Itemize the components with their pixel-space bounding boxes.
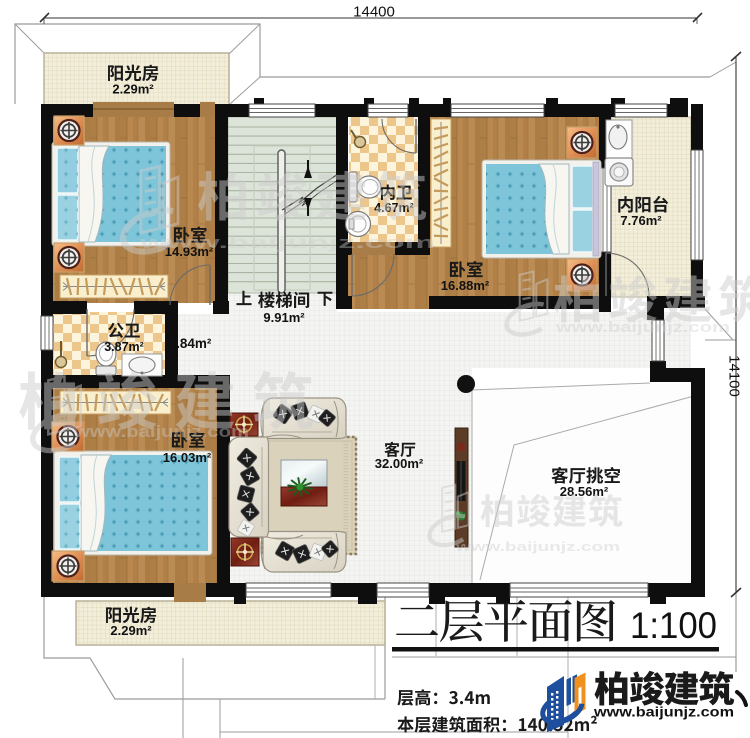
svg-text:2.29m²: 2.29m² <box>110 623 152 638</box>
svg-text:3.87m²: 3.87m² <box>104 340 144 354</box>
svg-text:www.baijunjz.com: www.baijunjz.com <box>455 539 620 554</box>
svg-text:28.56m²: 28.56m² <box>560 484 609 499</box>
svg-text:www.baijunjz.com: www.baijunjz.com <box>73 423 249 441</box>
svg-text:16.03m²: 16.03m² <box>163 450 212 465</box>
svg-text:www.baijunjz.com: www.baijunjz.com <box>593 705 734 720</box>
svg-text:9.91m²: 9.91m² <box>263 310 305 325</box>
svg-text:www.baijunjz.com: www.baijunjz.com <box>555 319 730 336</box>
svg-text:2.29m²: 2.29m² <box>112 82 154 97</box>
svg-text:14400: 14400 <box>353 4 395 21</box>
svg-text:7.76m²: 7.76m² <box>620 213 662 228</box>
svg-text:1:100: 1:100 <box>630 605 717 646</box>
svg-text:14100: 14100 <box>726 355 743 397</box>
svg-text:16.88m²: 16.88m² <box>441 278 490 293</box>
svg-text:1.84m²: 1.84m² <box>169 336 212 351</box>
svg-text:www.baijunjz.com: www.baijunjz.com <box>138 233 435 252</box>
svg-text:32.00m²: 32.00m² <box>375 456 424 471</box>
